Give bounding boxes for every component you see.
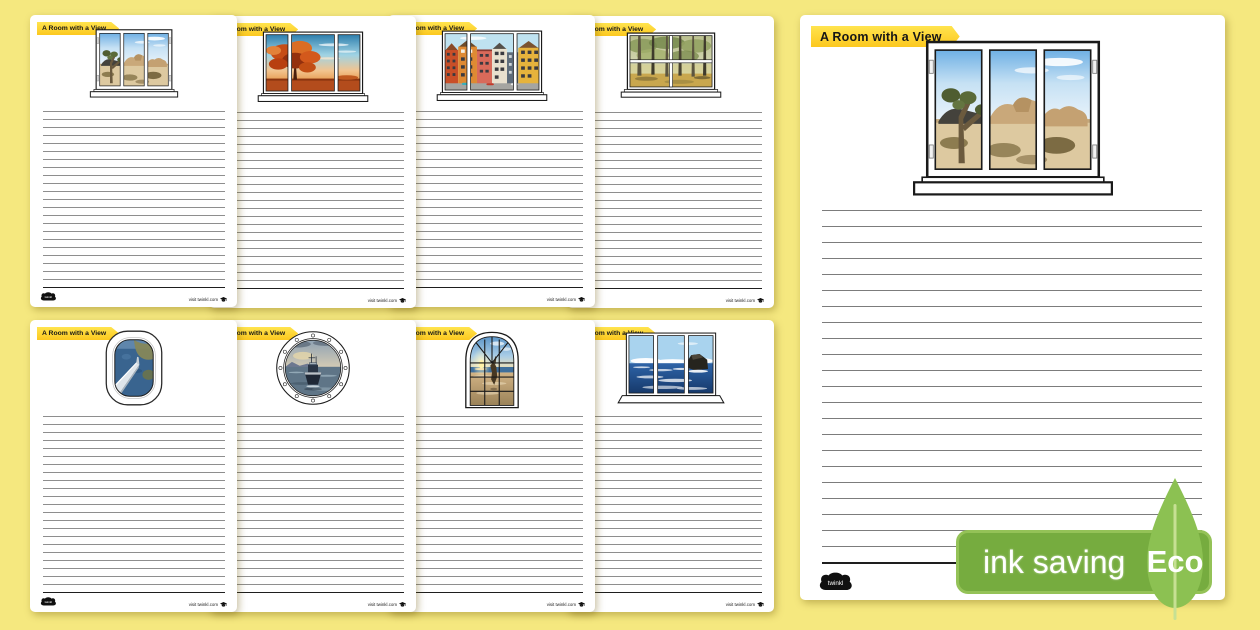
ocean-rocks-window — [612, 331, 730, 411]
visit-twinkl-footer: visit twinkl.com — [368, 298, 406, 304]
twinkl-logo: twinkl — [818, 572, 854, 592]
writing-line-bottom — [580, 592, 762, 594]
worksheet-page: A Room with a View twinkl visit twinkl.c… — [388, 320, 595, 612]
worksheet-page: A Room with a View twinkl visit twinkl.c… — [209, 320, 416, 612]
worksheet-page: A Room with a View twinkl visit twinkl.c… — [30, 15, 237, 307]
writing-lines — [401, 409, 583, 593]
graduation-cap-icon — [578, 297, 585, 303]
page-footer: twinkl visit twinkl.com — [388, 597, 595, 607]
forest-sash-window — [612, 30, 730, 107]
aeroplane-window — [102, 328, 166, 408]
desert-joshua-tree-window — [85, 28, 183, 99]
writing-lines — [401, 104, 583, 288]
aeroplane-window — [102, 328, 166, 408]
worksheet-page: A Room with a View twinkl visit twinkl.c… — [567, 16, 774, 308]
visit-twinkl-text: visit twinkl.com — [368, 602, 397, 607]
sunset-beach-arched-window — [462, 328, 522, 410]
sunset-beach-arched-window — [462, 328, 522, 410]
page-footer: twinkl visit twinkl.com — [30, 597, 237, 607]
visit-twinkl-text: visit twinkl.com — [547, 602, 576, 607]
svg-text:twinkl: twinkl — [45, 295, 53, 299]
page-title: A Room with a View — [42, 330, 106, 337]
visit-twinkl-text: visit twinkl.com — [547, 297, 576, 302]
writing-line-bottom — [401, 287, 583, 289]
visit-twinkl-footer: visit twinkl.com — [547, 297, 585, 303]
ink-saving-label: ink saving — [983, 544, 1125, 581]
page-footer: twinkl visit twinkl.com — [567, 597, 774, 607]
visit-twinkl-text: visit twinkl.com — [726, 298, 755, 303]
svg-text:twinkl: twinkl — [45, 600, 53, 604]
colourful-townhouses-window — [432, 29, 552, 107]
visit-twinkl-footer: visit twinkl.com — [189, 602, 227, 608]
writing-line-bottom — [222, 288, 404, 290]
writing-line-bottom — [401, 592, 583, 594]
visit-twinkl-text: visit twinkl.com — [368, 298, 397, 303]
writing-line-bottom — [222, 592, 404, 594]
graduation-cap-icon — [757, 298, 764, 304]
page-footer: twinkl visit twinkl.com — [209, 597, 416, 607]
writing-lines — [580, 409, 762, 593]
visit-twinkl-text: visit twinkl.com — [726, 602, 755, 607]
autumn-tree-window — [253, 30, 373, 108]
twinkl-logo: twinkl — [40, 292, 57, 302]
worksheet-page: A Room with a View twinkl visit twinkl.c… — [209, 16, 416, 308]
graduation-cap-icon — [220, 297, 227, 303]
page-footer: twinkl visit twinkl.com — [388, 292, 595, 302]
ship-porthole-window — [273, 328, 353, 408]
page-footer: twinkl visit twinkl.com — [567, 293, 774, 303]
graduation-cap-icon — [220, 602, 227, 608]
visit-twinkl-footer: visit twinkl.com — [726, 298, 764, 304]
desert-joshua-tree-window-large — [902, 38, 1124, 199]
writing-lines — [580, 105, 762, 289]
eco-label: Eco — [1142, 530, 1208, 594]
graduation-cap-icon — [399, 602, 406, 608]
graduation-cap-icon — [757, 602, 764, 608]
ink-saving-eco-badge: ink saving Eco — [956, 476, 1224, 624]
writing-lines — [222, 409, 404, 593]
visit-twinkl-footer: visit twinkl.com — [547, 602, 585, 608]
worksheet-page: A Room with a View twinkl visit twinkl.c… — [30, 320, 237, 612]
twinkl-logo: twinkl — [40, 597, 57, 607]
colourful-townhouses-window — [432, 29, 552, 107]
worksheet-page: A Room with a View twinkl visit twinkl.c… — [388, 15, 595, 307]
desert-joshua-tree-window-large — [902, 38, 1124, 199]
graduation-cap-icon — [578, 602, 585, 608]
writing-lines — [43, 409, 225, 593]
writing-line-bottom — [43, 287, 225, 289]
writing-line-bottom — [580, 288, 762, 290]
svg-text:twinkl: twinkl — [828, 580, 844, 587]
visit-twinkl-footer: visit twinkl.com — [368, 602, 406, 608]
forest-sash-window — [612, 30, 730, 107]
writing-line-bottom — [43, 592, 225, 594]
autumn-tree-window — [253, 30, 373, 108]
page-footer: twinkl visit twinkl.com — [30, 292, 237, 302]
desert-joshua-tree-window — [85, 28, 183, 99]
visit-twinkl-text: visit twinkl.com — [189, 297, 218, 302]
writing-lines — [43, 104, 225, 288]
writing-lines — [222, 105, 404, 289]
worksheet-page: A Room with a View twinkl visit twinkl.c… — [567, 320, 774, 612]
ship-porthole-window — [273, 328, 353, 408]
graduation-cap-icon — [399, 298, 406, 304]
ocean-rocks-window — [612, 331, 730, 411]
visit-twinkl-footer: visit twinkl.com — [189, 297, 227, 303]
page-footer: twinkl visit twinkl.com — [209, 293, 416, 303]
visit-twinkl-text: visit twinkl.com — [189, 602, 218, 607]
visit-twinkl-footer: visit twinkl.com — [726, 602, 764, 608]
